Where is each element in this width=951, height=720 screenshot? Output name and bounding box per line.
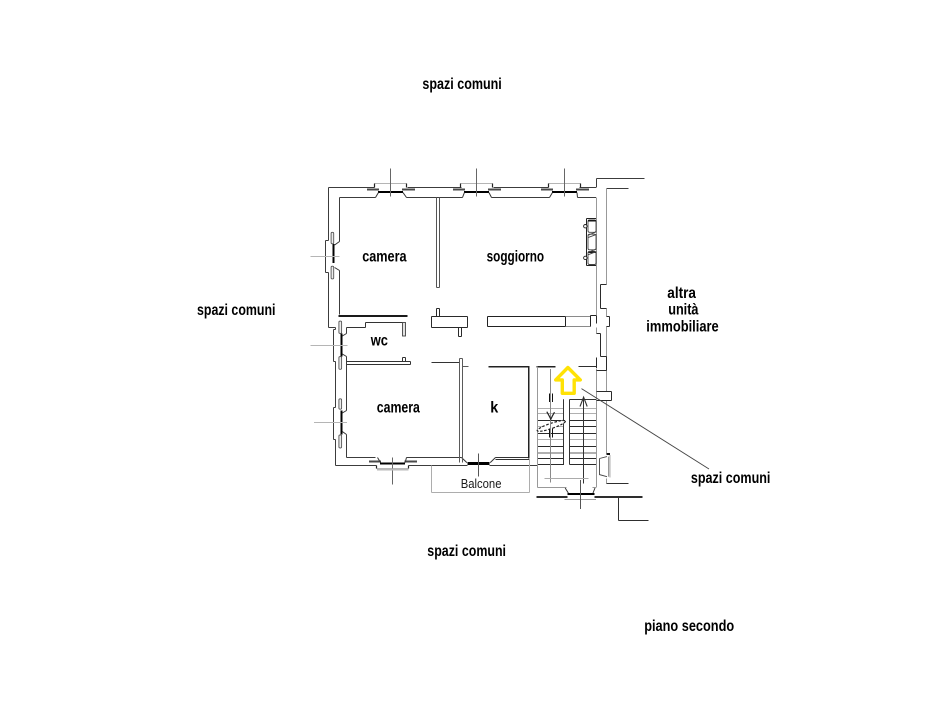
svg-text:wc: wc: [370, 333, 388, 350]
svg-text:Balcone: Balcone: [461, 476, 502, 491]
svg-text:soggiorno: soggiorno: [487, 249, 545, 266]
svg-text:piano secondo: piano secondo: [644, 618, 734, 635]
svg-text:spazi comuni: spazi comuni: [197, 302, 276, 319]
svg-text:spazi comuni: spazi comuni: [427, 543, 506, 560]
svg-text:spazi comuni: spazi comuni: [422, 76, 501, 93]
svg-text:immobiliare: immobiliare: [646, 318, 718, 335]
svg-text:altra: altra: [667, 285, 696, 302]
svg-text:unità: unità: [668, 302, 698, 319]
svg-text:camera: camera: [362, 249, 406, 266]
svg-text:camera: camera: [377, 399, 420, 416]
svg-text:k: k: [490, 399, 498, 416]
svg-text:spazi comuni: spazi comuni: [691, 470, 771, 487]
